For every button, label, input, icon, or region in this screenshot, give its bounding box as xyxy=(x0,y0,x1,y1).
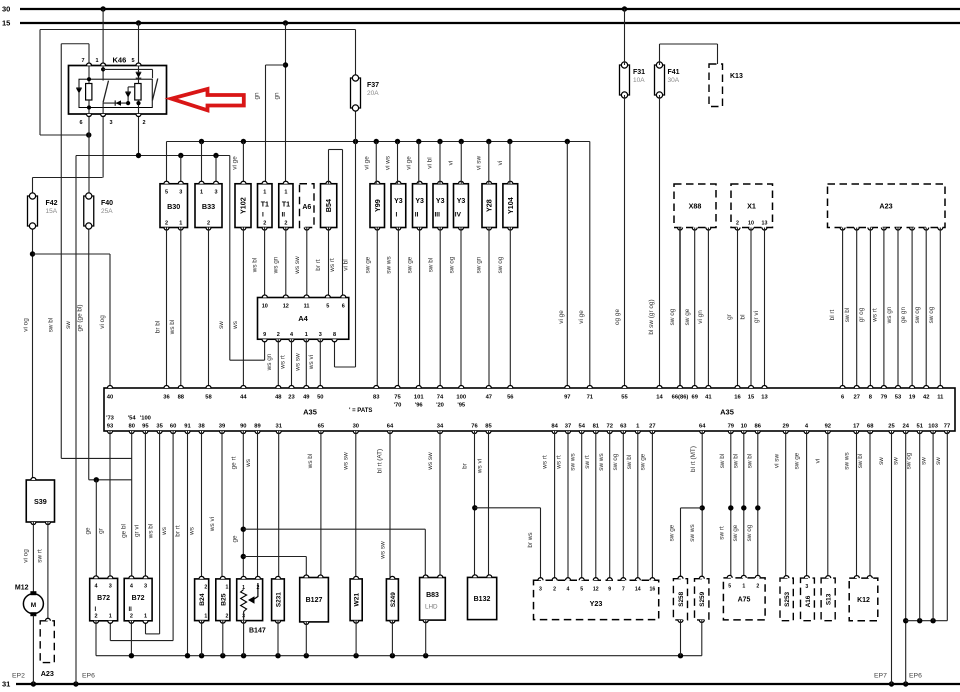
svg-text:66(86): 66(86) xyxy=(672,395,689,401)
svg-text:gn: gn xyxy=(274,92,281,100)
svg-text:15A: 15A xyxy=(46,208,58,215)
svg-text:sw og: sw og xyxy=(669,308,676,325)
svg-text:K13: K13 xyxy=(730,73,743,80)
svg-text:91: 91 xyxy=(184,424,191,430)
svg-text:sw og: sw og xyxy=(612,453,619,470)
svg-text:ws sw: ws sw xyxy=(295,353,302,372)
svg-text:vi: vi xyxy=(497,161,504,166)
svg-text:1: 1 xyxy=(144,614,147,620)
svg-text:50: 50 xyxy=(317,395,323,401)
svg-text:vi ws: vi ws xyxy=(385,156,392,170)
svg-text:17: 17 xyxy=(853,424,859,430)
svg-text:1: 1 xyxy=(263,190,266,196)
svg-text:sw ge: sw ge xyxy=(684,308,691,325)
svg-text:vi sw: vi sw xyxy=(774,454,781,469)
svg-text:92: 92 xyxy=(825,424,831,430)
svg-text:sw: sw xyxy=(935,457,942,465)
svg-text:EP6: EP6 xyxy=(909,673,922,680)
svg-text:11: 11 xyxy=(304,304,310,310)
svg-text:sw og: sw og xyxy=(497,256,504,273)
svg-text:vi ge: vi ge xyxy=(232,156,239,170)
svg-text:B30: B30 xyxy=(167,202,180,211)
svg-text:7: 7 xyxy=(81,58,84,64)
svg-text:79: 79 xyxy=(728,424,735,430)
svg-text:13: 13 xyxy=(761,395,768,401)
svg-text:IV: IV xyxy=(455,212,462,219)
svg-text:I: I xyxy=(262,212,264,219)
svg-text:12: 12 xyxy=(593,587,599,593)
svg-text:S13: S13 xyxy=(826,593,833,605)
svg-text:vi gn: vi gn xyxy=(697,310,704,324)
svg-text:B83: B83 xyxy=(426,592,439,599)
svg-text:68: 68 xyxy=(867,424,874,430)
svg-text:74: 74 xyxy=(437,395,444,401)
svg-text:ws sw: ws sw xyxy=(427,452,434,471)
svg-text:1: 1 xyxy=(179,221,182,227)
svg-text:35: 35 xyxy=(156,424,163,430)
svg-text:1: 1 xyxy=(109,614,112,620)
svg-text:sw bl: sw bl xyxy=(428,258,435,273)
svg-text:100: 100 xyxy=(456,395,466,401)
svg-text:bl sw (gr og): bl sw (gr og) xyxy=(648,299,655,334)
svg-text:10: 10 xyxy=(741,424,747,430)
svg-text:1: 1 xyxy=(305,332,308,338)
svg-text:48: 48 xyxy=(275,395,282,401)
svg-text:T1: T1 xyxy=(282,202,290,209)
svg-text:og ge: og ge xyxy=(614,309,621,325)
svg-text:X1: X1 xyxy=(747,202,756,211)
svg-text:F41: F41 xyxy=(668,69,680,76)
svg-text:sw bl: sw bl xyxy=(48,318,55,333)
svg-text:sw rt: sw rt xyxy=(584,455,591,469)
svg-text:72: 72 xyxy=(606,424,612,430)
svg-text:29: 29 xyxy=(782,424,789,430)
svg-text:44: 44 xyxy=(240,395,247,401)
svg-text:sw: sw xyxy=(921,457,928,465)
svg-text:vi: vi xyxy=(448,161,455,166)
svg-text:gr: gr xyxy=(98,527,105,534)
svg-text:F31: F31 xyxy=(633,69,645,76)
svg-text:II: II xyxy=(282,212,286,219)
svg-text:ge rt: ge rt xyxy=(230,456,237,469)
svg-text:ws bl: ws bl xyxy=(148,524,155,540)
svg-text:sw og: sw og xyxy=(746,524,753,541)
svg-text:1: 1 xyxy=(204,614,207,620)
svg-text:5: 5 xyxy=(728,584,731,590)
svg-text:5: 5 xyxy=(326,304,329,310)
svg-text:sw rt: sw rt xyxy=(719,526,726,540)
svg-text:51: 51 xyxy=(916,424,923,430)
svg-text:vi bl: vi bl xyxy=(427,157,434,168)
svg-text:55: 55 xyxy=(621,395,628,401)
svg-text:A35: A35 xyxy=(303,408,317,417)
svg-text:16: 16 xyxy=(650,587,656,593)
svg-text:31: 31 xyxy=(2,680,10,689)
svg-text:79: 79 xyxy=(881,395,888,401)
svg-text:F37: F37 xyxy=(367,82,379,89)
svg-text:'70: '70 xyxy=(394,403,402,409)
svg-text:25: 25 xyxy=(888,424,895,430)
svg-text:A4: A4 xyxy=(298,314,308,323)
svg-text:S258: S258 xyxy=(678,591,685,606)
svg-text:12: 12 xyxy=(283,304,289,310)
svg-text:40: 40 xyxy=(107,395,113,401)
svg-text:sw: sw xyxy=(65,321,72,329)
svg-text:sw ge: sw ge xyxy=(794,452,801,469)
svg-text:vi ge: vi ge xyxy=(364,156,371,170)
svg-text:1: 1 xyxy=(284,190,287,196)
svg-text:2: 2 xyxy=(130,614,133,620)
svg-text:sw: sw xyxy=(218,321,225,329)
svg-text:ge: ge xyxy=(84,527,91,535)
svg-text:gr: gr xyxy=(726,313,733,320)
svg-text:sw ge: sw ge xyxy=(732,524,739,541)
svg-text:2: 2 xyxy=(204,585,207,591)
svg-text:ws gn: ws gn xyxy=(273,256,280,274)
svg-text:34: 34 xyxy=(437,424,444,430)
svg-text:vi: vi xyxy=(815,459,822,464)
svg-text:S231: S231 xyxy=(275,592,282,607)
svg-text:ws sw: ws sw xyxy=(342,452,349,471)
svg-text:ws gn: ws gn xyxy=(886,306,893,324)
svg-text:vi ge: vi ge xyxy=(578,310,585,324)
svg-text:47: 47 xyxy=(486,395,492,401)
svg-text:Y3: Y3 xyxy=(436,198,445,205)
svg-text:bl rt: bl rt xyxy=(829,309,836,320)
svg-text:sw bl: sw bl xyxy=(844,308,851,323)
svg-text:bl rt (MT): bl rt (MT) xyxy=(690,446,697,472)
svg-text:br rt: br rt xyxy=(175,525,182,537)
svg-text:85: 85 xyxy=(485,424,492,430)
svg-text:77: 77 xyxy=(944,424,950,430)
svg-text:ws vi: ws vi xyxy=(476,459,483,474)
svg-text:ws vi: ws vi xyxy=(308,355,315,370)
svg-text:X88: X88 xyxy=(689,202,702,211)
svg-text:'96: '96 xyxy=(415,403,424,409)
svg-text:ws rt: ws rt xyxy=(872,308,879,323)
svg-text:M12: M12 xyxy=(15,585,29,592)
svg-text:10: 10 xyxy=(748,221,754,227)
svg-text:3: 3 xyxy=(539,587,542,593)
svg-text:ws rt: ws rt xyxy=(329,258,336,273)
svg-text:6: 6 xyxy=(342,304,345,310)
svg-text:sw ge: sw ge xyxy=(669,524,676,541)
svg-text:ws sw: ws sw xyxy=(294,256,301,275)
svg-text:38: 38 xyxy=(198,424,205,430)
svg-text:5: 5 xyxy=(165,190,168,196)
svg-text:ge (ge bl): ge (ge bl) xyxy=(77,305,84,332)
svg-text:14: 14 xyxy=(635,587,641,593)
svg-text:2: 2 xyxy=(143,120,146,126)
svg-text:B33: B33 xyxy=(202,202,215,211)
svg-text:93: 93 xyxy=(107,424,114,430)
svg-text:2: 2 xyxy=(165,221,168,227)
svg-text:'20: '20 xyxy=(436,403,444,409)
svg-text:2: 2 xyxy=(94,614,97,620)
svg-text:K46: K46 xyxy=(113,56,127,65)
svg-text:S39: S39 xyxy=(34,497,47,506)
svg-text:gn: gn xyxy=(254,92,261,100)
svg-text:54: 54 xyxy=(578,424,585,430)
svg-text:B54: B54 xyxy=(324,199,333,212)
svg-text:42: 42 xyxy=(923,395,929,401)
svg-text:B72: B72 xyxy=(97,595,110,602)
svg-text:vi ge: vi ge xyxy=(558,310,565,324)
svg-text:sw og: sw og xyxy=(914,306,921,323)
svg-text:LHD: LHD xyxy=(425,604,438,611)
svg-text:A35: A35 xyxy=(720,408,734,417)
svg-text:3: 3 xyxy=(805,584,808,590)
svg-text:A6: A6 xyxy=(302,204,311,211)
svg-text:ws bl: ws bl xyxy=(169,320,176,336)
svg-text:95: 95 xyxy=(142,424,149,430)
svg-text:B132: B132 xyxy=(474,596,491,603)
svg-text:Y3: Y3 xyxy=(415,198,424,205)
svg-text:vi og: vi og xyxy=(23,549,30,563)
svg-text:15: 15 xyxy=(2,19,10,28)
svg-text:gr vi: gr vi xyxy=(753,311,760,323)
svg-text:90: 90 xyxy=(240,424,246,430)
svg-text:'100: '100 xyxy=(140,416,151,422)
svg-text:br ws: br ws xyxy=(527,532,534,547)
svg-text:ws rt: ws rt xyxy=(556,455,563,470)
svg-text:39: 39 xyxy=(219,424,226,430)
svg-text:ws gn: ws gn xyxy=(266,353,273,371)
svg-text:4: 4 xyxy=(567,587,570,593)
svg-text:9: 9 xyxy=(263,332,266,338)
svg-text:sw bl: sw bl xyxy=(857,454,864,469)
svg-text:EP6: EP6 xyxy=(82,673,95,680)
svg-text:A23: A23 xyxy=(41,669,54,678)
svg-text:37: 37 xyxy=(565,424,571,430)
svg-text:S259: S259 xyxy=(699,591,706,606)
svg-text:2: 2 xyxy=(226,614,229,620)
svg-text:103: 103 xyxy=(928,424,938,430)
svg-text:ws bl: ws bl xyxy=(252,258,259,274)
svg-text:'73: '73 xyxy=(106,416,115,422)
svg-text:F42: F42 xyxy=(46,200,58,207)
svg-text:56: 56 xyxy=(507,395,514,401)
svg-text:sw rt: sw rt xyxy=(36,549,43,563)
svg-text:ws rt: ws rt xyxy=(542,455,549,470)
svg-text:F40: F40 xyxy=(101,200,113,207)
svg-text:sw ge: sw ge xyxy=(365,256,372,273)
svg-text:8: 8 xyxy=(333,332,336,338)
svg-text:58: 58 xyxy=(205,395,212,401)
svg-text:br bl: br bl xyxy=(155,321,162,333)
svg-text:97: 97 xyxy=(564,395,570,401)
svg-text:EP7: EP7 xyxy=(874,673,887,680)
svg-text:83: 83 xyxy=(373,395,380,401)
svg-text:sw: sw xyxy=(892,457,899,465)
svg-text:br: br xyxy=(462,462,469,469)
svg-text:Y3: Y3 xyxy=(457,198,466,205)
svg-text:sw ws: sw ws xyxy=(689,524,696,541)
svg-text:27: 27 xyxy=(853,395,859,401)
svg-text:S253: S253 xyxy=(784,591,791,606)
svg-text:bl rt (AT): bl rt (AT) xyxy=(376,449,383,473)
svg-text:1: 1 xyxy=(200,190,203,196)
svg-text:2: 2 xyxy=(277,332,280,338)
svg-text:13: 13 xyxy=(762,221,768,227)
svg-text:ge bl: ge bl xyxy=(121,524,128,538)
svg-text:ws vi: ws vi xyxy=(209,517,216,532)
svg-text:br rt: br rt xyxy=(315,259,322,271)
svg-text:60: 60 xyxy=(170,424,176,430)
svg-text:B24: B24 xyxy=(199,593,206,606)
svg-text:sw ws: sw ws xyxy=(570,453,577,470)
svg-text:49: 49 xyxy=(303,395,310,401)
svg-text:19: 19 xyxy=(909,395,916,401)
svg-text:5: 5 xyxy=(131,58,134,64)
svg-text:B147: B147 xyxy=(249,628,266,635)
svg-text:41: 41 xyxy=(705,395,712,401)
svg-text:sw ws: sw ws xyxy=(843,452,850,469)
svg-text:81: 81 xyxy=(593,424,600,430)
svg-text:'54: '54 xyxy=(128,416,137,422)
svg-text:S249: S249 xyxy=(390,592,397,607)
svg-text:9: 9 xyxy=(608,587,611,593)
svg-text:B72: B72 xyxy=(132,595,145,602)
svg-text:ws sw: ws sw xyxy=(380,541,387,560)
svg-text:1: 1 xyxy=(742,584,745,590)
svg-text:A16: A16 xyxy=(805,595,812,607)
svg-text:sw bl: sw bl xyxy=(626,455,633,470)
svg-text:1: 1 xyxy=(226,585,229,591)
svg-text:Y23: Y23 xyxy=(590,599,603,608)
svg-text:5: 5 xyxy=(580,587,583,593)
svg-text:1: 1 xyxy=(95,58,98,64)
svg-text:65: 65 xyxy=(318,424,325,430)
svg-text:sw bl: sw bl xyxy=(719,454,726,469)
svg-text:ws bl: ws bl xyxy=(307,454,314,470)
svg-text:M: M xyxy=(31,602,36,609)
svg-text:vi ge: vi ge xyxy=(406,156,413,170)
svg-text:III: III xyxy=(435,212,441,219)
svg-text:27: 27 xyxy=(649,424,655,430)
svg-text:30: 30 xyxy=(2,5,10,14)
svg-text:2: 2 xyxy=(284,221,287,227)
svg-text:76: 76 xyxy=(471,424,478,430)
svg-text:sw ge: sw ge xyxy=(407,256,414,273)
svg-text:A75: A75 xyxy=(738,597,751,604)
svg-text:ws: ws xyxy=(161,527,168,536)
svg-text:101: 101 xyxy=(414,395,424,401)
svg-text:ws: ws xyxy=(245,459,252,468)
svg-text:EP2: EP2 xyxy=(12,673,25,680)
svg-text:II: II xyxy=(415,212,419,219)
svg-text:30A: 30A xyxy=(668,77,680,84)
svg-text:vi sw: vi sw xyxy=(476,156,483,171)
svg-text:ws rt: ws rt xyxy=(280,355,287,370)
svg-text:15: 15 xyxy=(748,395,755,401)
svg-text:69: 69 xyxy=(691,395,698,401)
svg-text:14: 14 xyxy=(656,395,663,401)
svg-text:II: II xyxy=(129,607,133,613)
svg-text:Y28: Y28 xyxy=(485,199,494,212)
svg-text:53: 53 xyxy=(895,395,902,401)
svg-text:3: 3 xyxy=(214,190,217,196)
svg-text:71: 71 xyxy=(587,395,594,401)
svg-text:30: 30 xyxy=(353,424,359,430)
svg-text:sw og: sw og xyxy=(906,452,913,469)
svg-text:sw ge: sw ge xyxy=(640,453,647,470)
svg-text:vi bl: vi bl xyxy=(343,259,350,270)
svg-text:A23: A23 xyxy=(879,202,892,211)
svg-text:Y102: Y102 xyxy=(239,197,248,214)
svg-text:3: 3 xyxy=(319,332,322,338)
svg-text:63: 63 xyxy=(620,424,627,430)
svg-text:sw bl: sw bl xyxy=(733,454,740,469)
svg-text:20A: 20A xyxy=(367,90,379,97)
svg-text:75: 75 xyxy=(394,395,401,401)
svg-text:sw: sw xyxy=(878,457,885,465)
svg-text:84: 84 xyxy=(551,424,558,430)
svg-text:3: 3 xyxy=(144,584,147,590)
svg-text:2: 2 xyxy=(736,221,739,227)
svg-text:I: I xyxy=(396,212,398,219)
svg-text:10A: 10A xyxy=(633,77,645,84)
svg-text:sw og: sw og xyxy=(449,256,456,273)
svg-text:vi og: vi og xyxy=(23,318,30,332)
svg-text:3: 3 xyxy=(179,190,182,196)
svg-text:ws: ws xyxy=(232,321,239,330)
svg-text:2: 2 xyxy=(756,584,759,590)
svg-text:89: 89 xyxy=(254,424,261,430)
svg-text:sw ws: sw ws xyxy=(386,256,393,273)
svg-text:B127: B127 xyxy=(306,597,323,604)
svg-text:gr og: gr og xyxy=(858,307,865,322)
svg-text:gr vi: gr vi xyxy=(133,525,140,537)
svg-text:64: 64 xyxy=(387,424,394,430)
svg-text:Y3: Y3 xyxy=(394,198,403,205)
svg-text:24: 24 xyxy=(902,424,909,430)
svg-text:6: 6 xyxy=(79,120,82,126)
svg-text:36: 36 xyxy=(163,395,170,401)
svg-text:K12: K12 xyxy=(857,597,870,604)
svg-text:' = PATS: ' = PATS xyxy=(349,408,372,414)
svg-text:10: 10 xyxy=(262,304,268,310)
svg-text:ge: ge xyxy=(232,535,239,543)
svg-text:11: 11 xyxy=(937,395,944,401)
svg-text:2: 2 xyxy=(207,221,210,227)
svg-text:31: 31 xyxy=(275,424,282,430)
svg-text:Y104: Y104 xyxy=(506,197,515,214)
svg-text:16: 16 xyxy=(734,395,741,401)
svg-text:B25: B25 xyxy=(220,593,227,606)
svg-text:sw gn: sw gn xyxy=(476,256,483,273)
svg-text:2: 2 xyxy=(263,221,266,227)
svg-text:bl: bl xyxy=(740,315,747,320)
svg-text:64: 64 xyxy=(699,424,706,430)
svg-text:sw ws: sw ws xyxy=(598,453,605,470)
svg-text:Y99: Y99 xyxy=(373,199,382,212)
svg-text:W21: W21 xyxy=(354,593,361,607)
svg-text:80: 80 xyxy=(128,424,134,430)
svg-text:88: 88 xyxy=(178,395,185,401)
svg-text:ws: ws xyxy=(189,527,196,536)
svg-text:3: 3 xyxy=(109,584,112,590)
svg-text:vi og: vi og xyxy=(99,315,106,329)
svg-text:25A: 25A xyxy=(101,208,113,215)
svg-text:23: 23 xyxy=(288,395,295,401)
svg-text:7: 7 xyxy=(622,587,625,593)
svg-text:sw bl: sw bl xyxy=(747,454,754,469)
svg-text:86: 86 xyxy=(754,424,761,430)
svg-text:sw og: sw og xyxy=(928,306,935,323)
svg-text:ge gn: ge gn xyxy=(900,307,907,323)
svg-text:'95: '95 xyxy=(457,403,466,409)
